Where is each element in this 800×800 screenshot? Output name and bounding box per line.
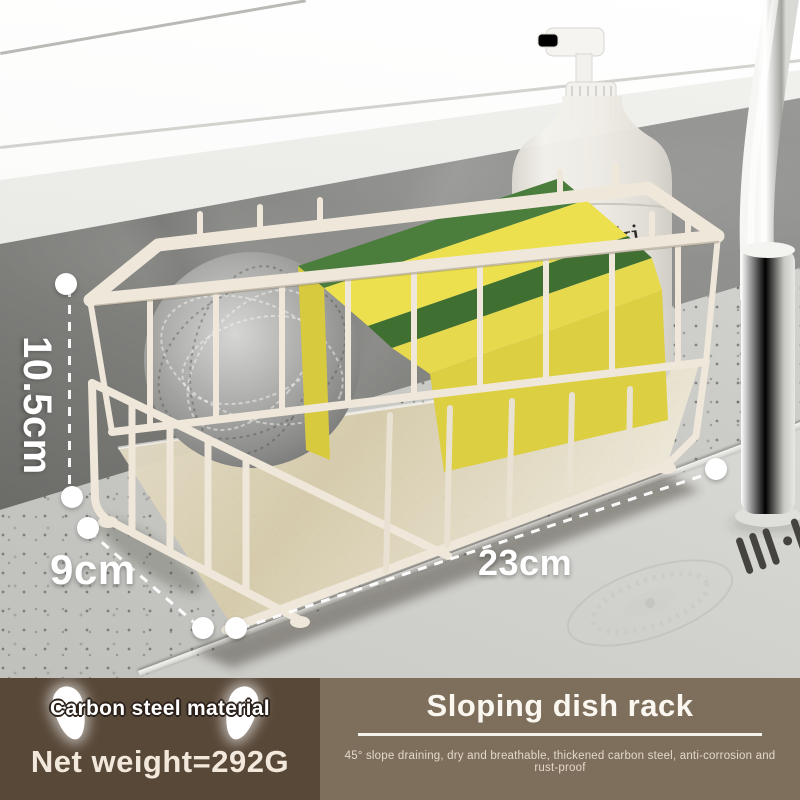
measure-dot <box>77 517 99 539</box>
sink-drain <box>558 543 743 663</box>
measure-dot <box>61 486 83 508</box>
net-weight-label: Net weight=292G <box>0 744 320 780</box>
measure-dot <box>192 617 214 639</box>
material-badge: Carbon steel material <box>0 697 320 721</box>
product-image: meraki linen dew 300 ml BODY LOTION <box>0 0 800 800</box>
measure-dot <box>225 617 247 639</box>
measure-dot <box>705 458 727 480</box>
product-title: Sloping dish rack <box>427 688 694 724</box>
title-divider <box>358 733 762 736</box>
height-dimension-label: 10.5cm <box>14 336 59 475</box>
height-dimension-line <box>68 288 71 494</box>
product-subtitle: 45° slope draining, dry and breathable, … <box>340 750 780 774</box>
width-dimension-label: 23cm <box>478 542 572 584</box>
banner-right-panel: Sloping dish rack 45° slope draining, dr… <box>320 678 800 800</box>
faucet <box>730 0 800 533</box>
depth-dimension-label: 9cm <box>50 546 136 594</box>
measure-dot <box>55 273 77 295</box>
info-banner: Carbon steel material Net weight=292G Sl… <box>0 678 800 800</box>
banner-left-panel: Carbon steel material Net weight=292G <box>0 678 320 800</box>
